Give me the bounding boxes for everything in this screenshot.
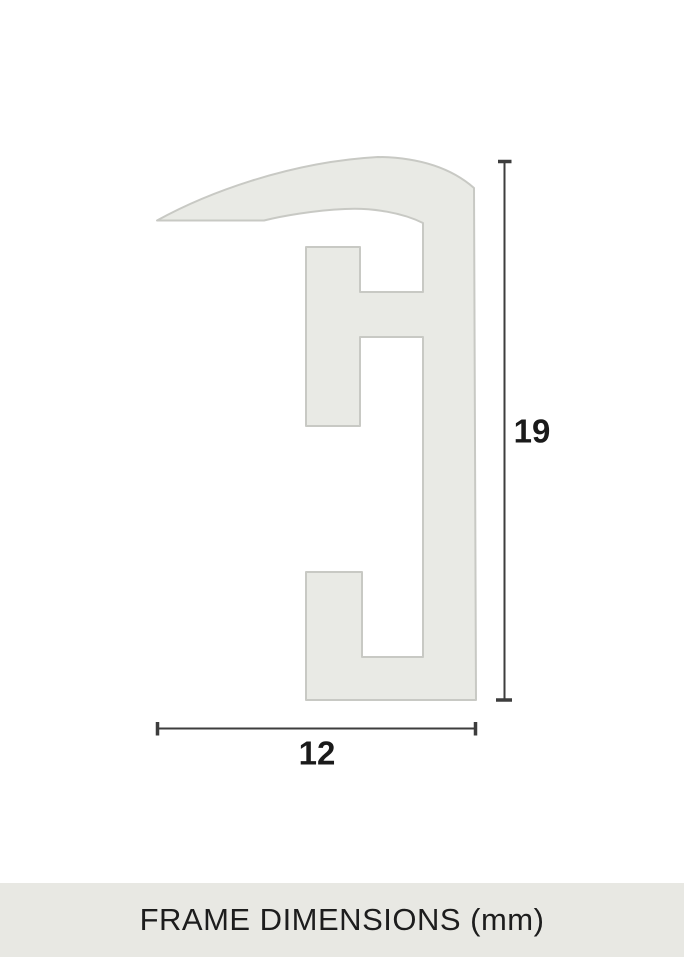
height-dimension-label: 19 <box>514 415 551 448</box>
height-dimension-line <box>496 162 512 701</box>
frame-profile-shape <box>157 157 476 700</box>
width-dimension-line <box>158 722 476 736</box>
frame-dimensions-diagram: 19 12 FRAME DIMENSIONS (mm) <box>0 0 684 957</box>
footer-caption-bar: FRAME DIMENSIONS (mm) <box>0 883 684 957</box>
width-dimension-label: 12 <box>299 737 336 770</box>
footer-caption: FRAME DIMENSIONS (mm) <box>140 902 545 938</box>
profile-diagram-canvas <box>0 0 684 957</box>
